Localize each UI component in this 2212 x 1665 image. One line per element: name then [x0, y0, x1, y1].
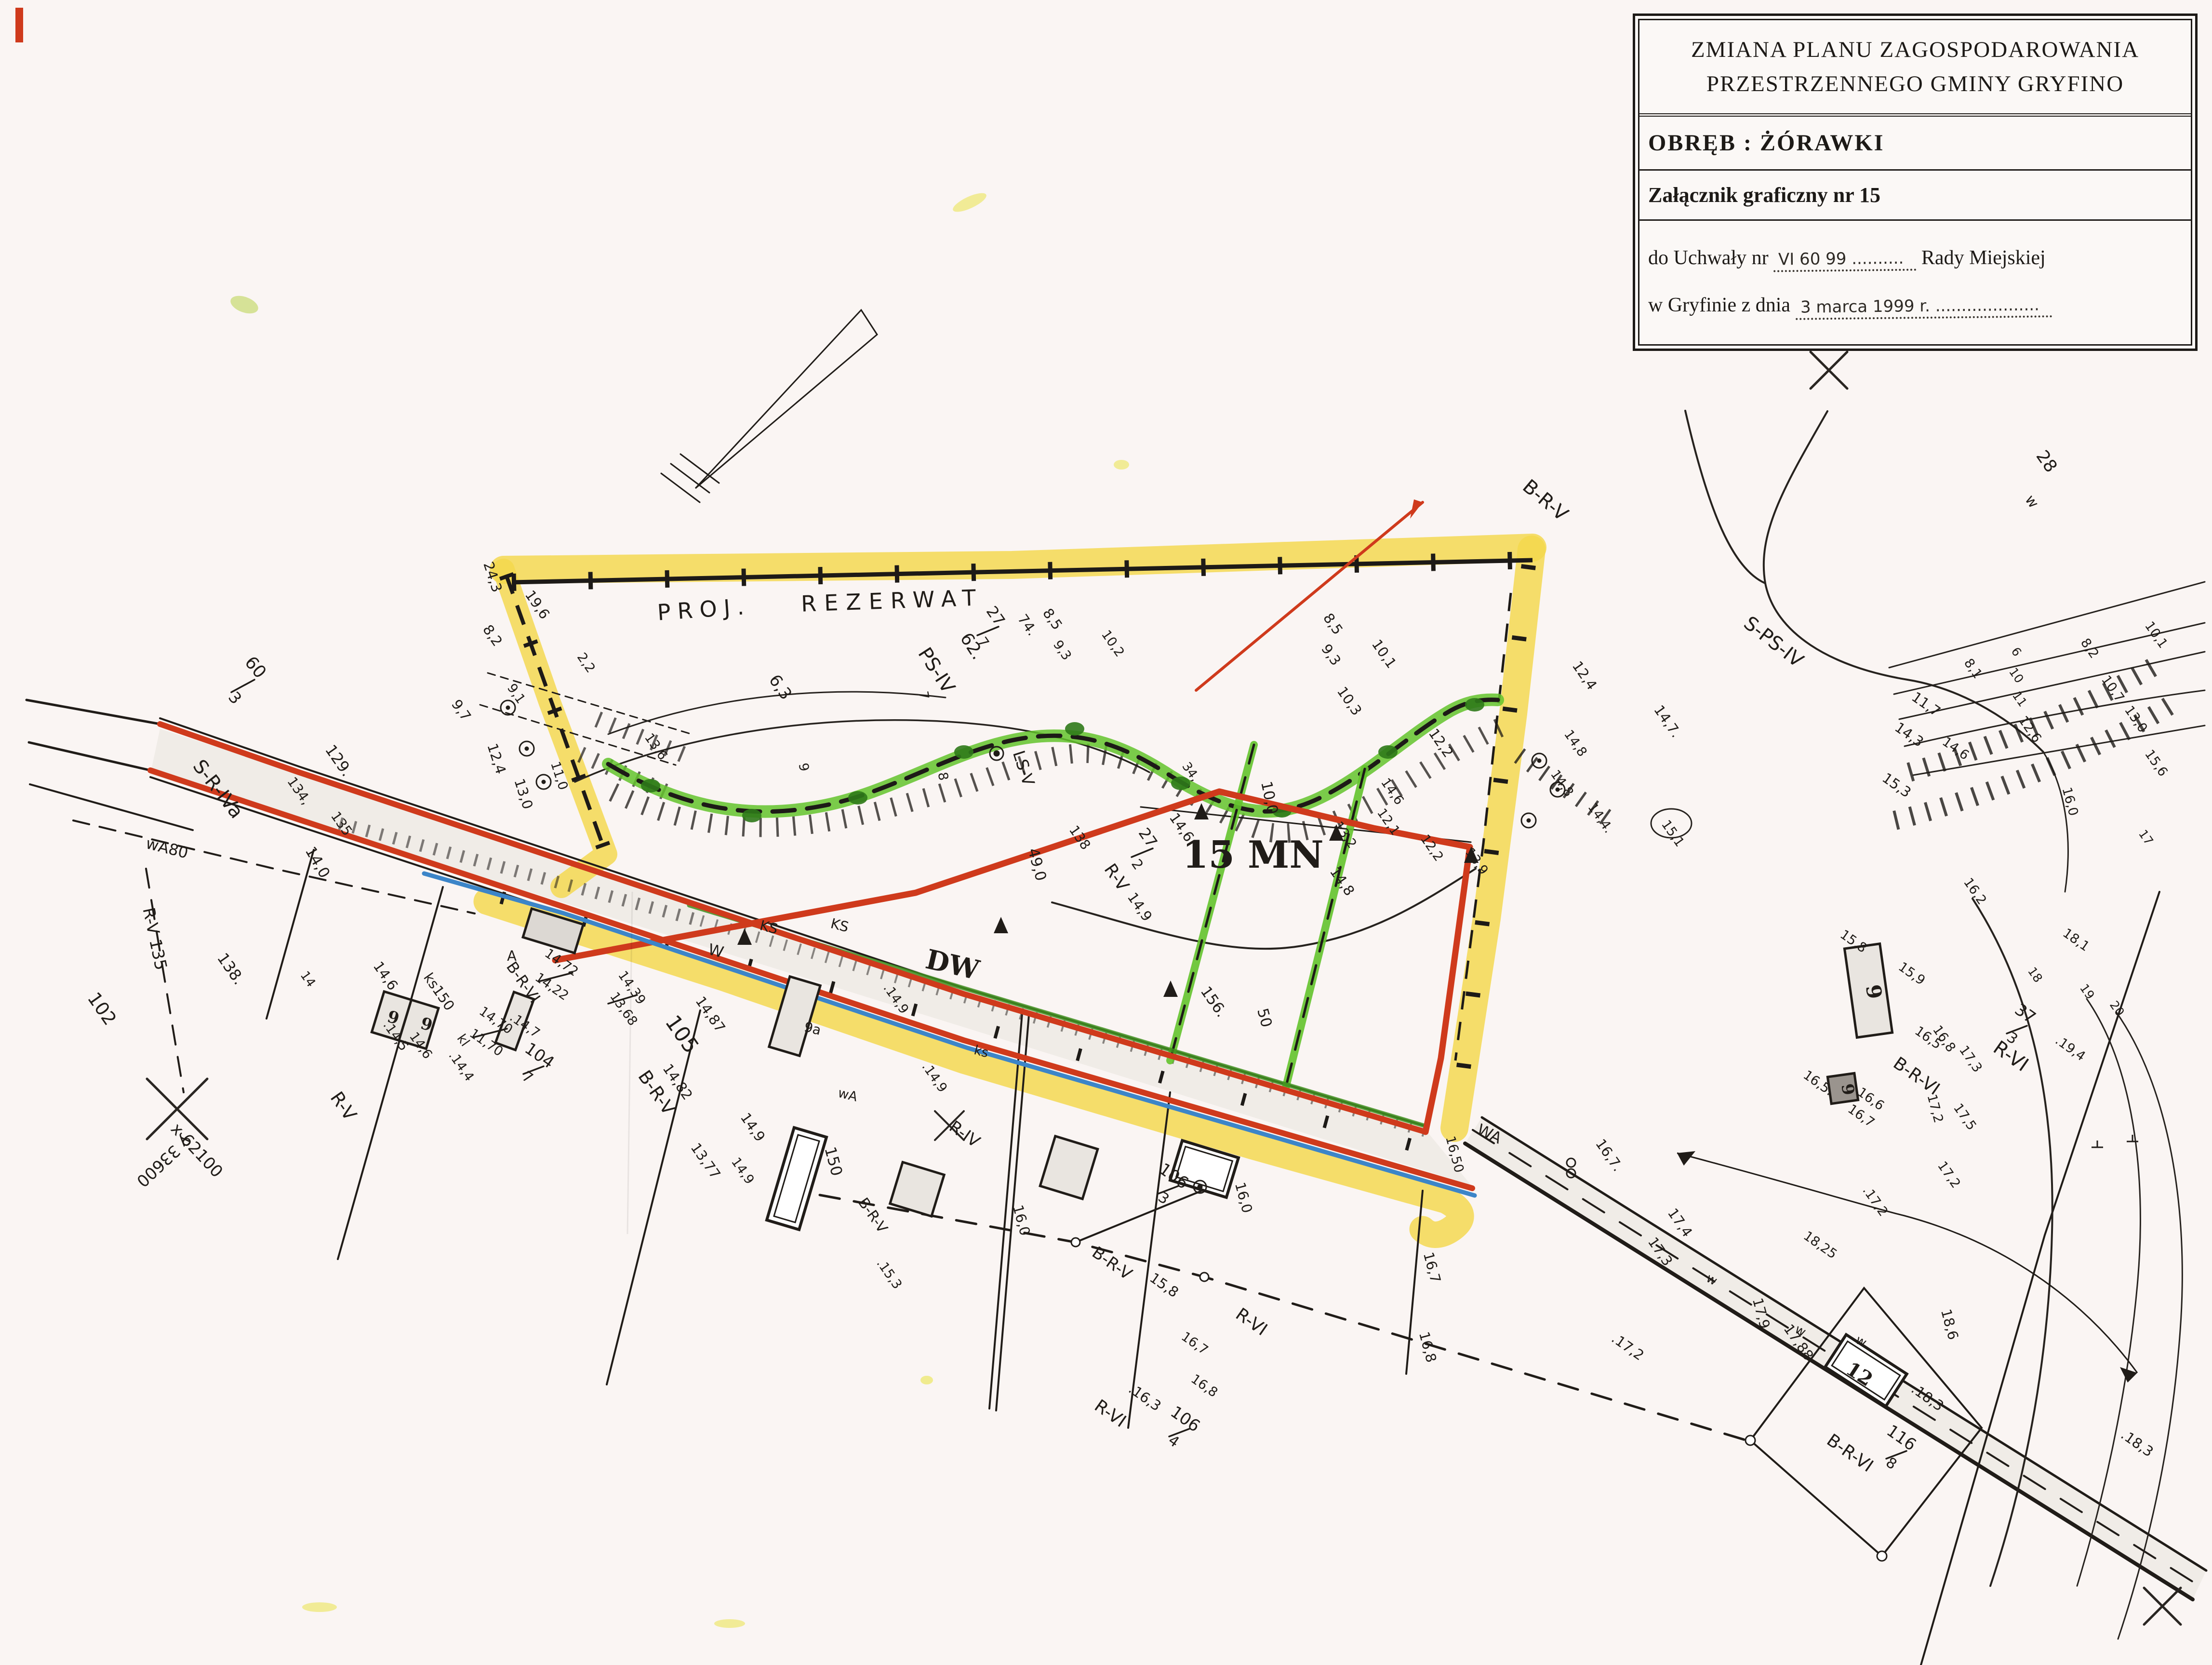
plan-title: ZMIANA PLANU ZAGOSPODAROWANIA PRZESTRZEN… — [1639, 20, 2191, 117]
uchwala-line: do Uchwały nr VI 60 99 .......... Rady M… — [1648, 246, 2182, 271]
zalacznik-row: Załącznik graficzny nr 15 — [1639, 171, 2191, 221]
uchwala-section: do Uchwały nr VI 60 99 .......... Rady M… — [1639, 221, 2191, 344]
zalacznik-label: Załącznik graficzny nr 15 — [1648, 183, 1880, 207]
date-line: w Gryfinie z dnia 3 marca 1999 r. ......… — [1648, 294, 2182, 319]
uchwala-prefix: do Uchwały nr — [1648, 247, 1769, 269]
title-block: ZMIANA PLANU ZAGOSPODAROWANIA PRZESTRZEN… — [1633, 13, 2198, 351]
obreb-row: OBRĘB : ŻÓRAWKI — [1639, 117, 2191, 171]
map-label: A — [507, 948, 517, 964]
plan-title-line2: PRZESTRZENNEGO GMINY GRYFINO — [1648, 67, 2182, 101]
obreb-label: OBRĘB : ŻÓRAWKI — [1648, 130, 1884, 156]
title-block-inner: ZMIANA PLANU ZAGOSPODAROWANIA PRZESTRZEN… — [1638, 19, 2192, 346]
uchwala-number: VI 60 99 .......... — [1773, 249, 1917, 272]
map-label: 15 MN — [1182, 833, 1323, 877]
plan-title-line1: ZMIANA PLANU ZAGOSPODAROWANIA — [1648, 33, 2182, 67]
date-value: 3 marca 1999 r. .................... — [1795, 295, 2052, 320]
scanned-zoning-map-page: { "title_block": { "line1": "ZMIANA PLAN… — [0, 0, 2212, 1665]
date-prefix: w Gryfinie z dnia — [1648, 294, 1790, 316]
uchwala-suffix: Rady Miejskiej — [1921, 247, 2046, 269]
